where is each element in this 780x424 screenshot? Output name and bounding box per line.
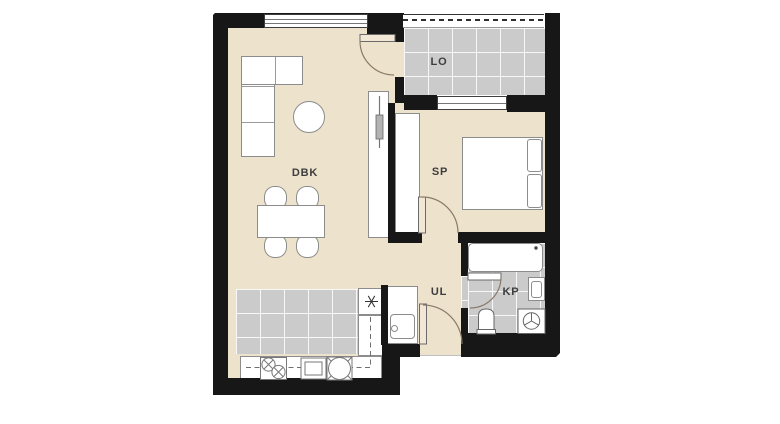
room-label-ul: UL	[431, 286, 447, 298]
bathroom-door	[468, 273, 501, 308]
room-label-lo: LO	[431, 56, 448, 68]
symbols-overlay	[0, 0, 780, 424]
bathtub-drain	[534, 246, 537, 249]
cooktop-icon	[261, 358, 287, 380]
room-label-sp: SP	[432, 166, 448, 178]
kitchen-sink-icon	[327, 357, 352, 380]
room-label-kp: KP	[503, 286, 520, 298]
room-label-dbk: DBK	[292, 167, 318, 179]
floor-plan: DBK SP UL KP LO	[0, 0, 780, 424]
toilet-icon	[477, 309, 496, 334]
bedroom-door	[419, 197, 459, 233]
tv-icon	[376, 96, 383, 148]
oven-icon	[301, 358, 326, 379]
entrance-door	[420, 304, 463, 344]
loggia-door	[360, 35, 395, 76]
washing-machine-icon	[518, 309, 545, 334]
freezer-star-icon	[365, 296, 378, 307]
